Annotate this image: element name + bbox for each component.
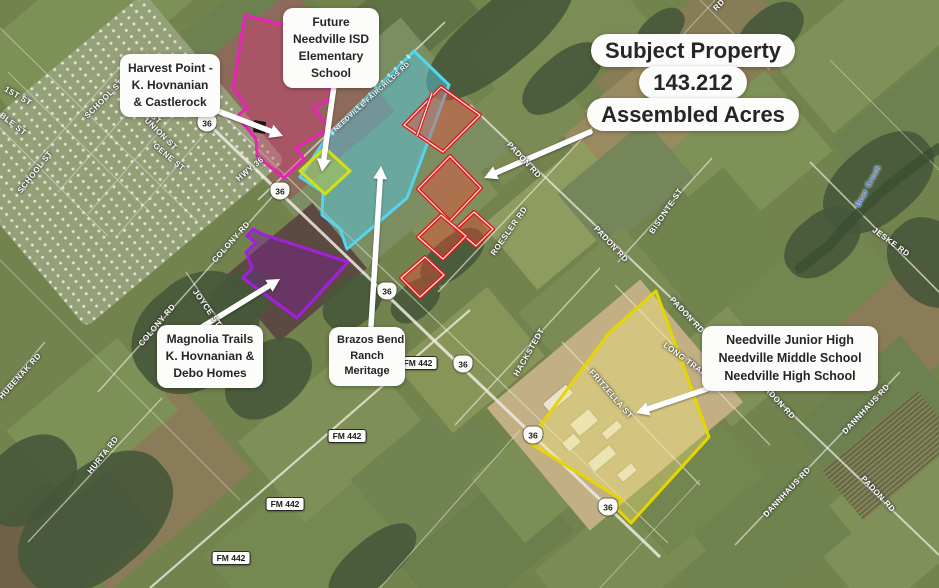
callout-line: 143.212 [639, 66, 747, 99]
road-label-jeske-rd: JESKE RD [871, 225, 912, 258]
callout-line: Needville Middle School [710, 350, 870, 368]
road-label-ble-st: BLE ST [0, 111, 28, 137]
road-label-school-st: SCHOOL ST [16, 149, 55, 195]
bear-creek-label: Bear Creek [853, 163, 883, 208]
road-label-hwy-36: HWY-36 [235, 155, 266, 183]
callout-line: & Castlerock [128, 94, 212, 111]
brazos-bend-callout-box: Brazos BendRanchMeritage [329, 327, 405, 386]
road-label-padon-rd: PADON RD [859, 474, 897, 514]
fm-442-sign: FM 442 [212, 551, 251, 565]
callout-line: Ranch [337, 349, 397, 365]
road-label-padon-rd: PADON RD [592, 224, 630, 264]
callout-line: Needville High School [710, 368, 870, 386]
road-label-school-st: SCHOOL ST [83, 78, 125, 120]
callout-line: Elementary [291, 48, 371, 65]
highway-36-shield: 36 [378, 283, 397, 300]
fm-442-sign: FM 442 [266, 497, 305, 511]
highway-36-shield: 36 [271, 183, 290, 200]
highway-36-shield: 36 [599, 499, 618, 516]
satellite-map: 1ST STBLE STSCHOOL STSCHOOL STE STUNION … [0, 0, 939, 588]
callout-line: Needville Junior High [710, 332, 870, 350]
map-labels-layer: 1ST STBLE STSCHOOL STSCHOOL STE STUNION … [0, 0, 939, 588]
road-label-rd: RD [711, 0, 726, 13]
callout-line: Future [291, 14, 371, 31]
callout-line: Harvest Point - [128, 60, 212, 77]
road-label-padon-rd: PADON RD [668, 295, 706, 335]
callout-line: School [291, 65, 371, 82]
callout-line: Magnolia Trails [165, 331, 255, 348]
future-school-callout: FutureNeedville ISDElementarySchool [283, 8, 379, 88]
road-label-colony-rd: COLONY RD [210, 220, 252, 265]
road-label-hubenak-rd: HUBENAK RD [0, 351, 43, 401]
callout-line: Brazos Bend [337, 333, 397, 349]
road-label-hackstedt: HACKSTEDT [512, 326, 547, 377]
needville-schools-callout-box: Needville Junior HighNeedville Middle Sc… [702, 326, 878, 391]
needville-schools-callout: Needville Junior HighNeedville Middle Sc… [702, 326, 878, 391]
fm-442-sign: FM 442 [328, 429, 367, 443]
road-label-padon-rd: PADON RD [505, 140, 543, 180]
road-label-roesler-rd: ROESLER RD [489, 205, 529, 257]
road-label-bisonte-st: BISONTE ST [647, 187, 684, 236]
callout-line: K. Hovnanian & [165, 348, 255, 365]
callout-line: K. Hovnanian [128, 77, 212, 94]
road-label-1st-st: 1ST ST [3, 85, 34, 108]
callout-line: Needville ISD [291, 31, 371, 48]
brazos-bend-callout: Brazos BendRanchMeritage [329, 327, 405, 386]
magnolia-trails-callout: Magnolia TrailsK. Hovnanian &Debo Homes [157, 325, 263, 388]
callout-line: Assembled Acres [587, 98, 799, 131]
subject-property-callout: Subject Property143.212Assembled Acres [585, 34, 801, 131]
road-label-joyce-st: JOYCE ST [191, 288, 223, 329]
callout-line: Meritage [337, 364, 397, 380]
road-label-dannhaus-rd: DANNHAUS RD [762, 465, 813, 519]
harvest-point-callout-box: Harvest Point -K. Hovnanian& Castlerock [120, 54, 220, 117]
road-label-hurta-rd: HURTA RD [86, 435, 121, 476]
highway-36-shield: 36 [524, 427, 543, 444]
future-school-callout-box: FutureNeedville ISDElementarySchool [283, 8, 379, 88]
magnolia-trails-callout-box: Magnolia TrailsK. Hovnanian &Debo Homes [157, 325, 263, 388]
highway-36-shield: 36 [454, 356, 473, 373]
callout-line: Subject Property [591, 34, 795, 67]
harvest-point-callout: Harvest Point -K. Hovnanian& Castlerock [120, 54, 220, 117]
road-label-fritzella-st: FRITZELLA ST [587, 368, 634, 420]
callout-line: Debo Homes [165, 365, 255, 382]
